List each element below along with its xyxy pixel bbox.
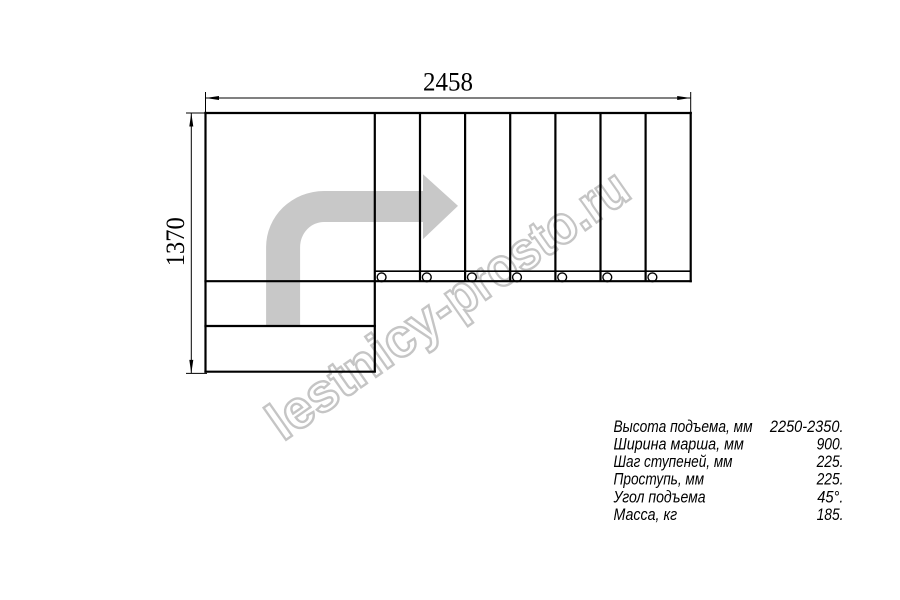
svg-text:225.: 225. (816, 453, 844, 471)
svg-text:225.: 225. (816, 471, 844, 489)
svg-text:1370: 1370 (161, 217, 190, 266)
svg-text:Высота подъема, мм: Высота подъема, мм (614, 418, 753, 436)
svg-text:Масса, кг: Масса, кг (614, 506, 678, 524)
svg-text:Проступь, мм: Проступь, мм (614, 471, 705, 489)
svg-text:Шаг ступеней, мм: Шаг ступеней, мм (614, 453, 733, 471)
svg-text:-prosto.ru: -prosto.ru (418, 157, 641, 338)
svg-text:45°.: 45°. (817, 488, 843, 506)
svg-text:2250-2350.: 2250-2350. (769, 418, 843, 436)
svg-text:Угол подъема: Угол подъема (613, 488, 706, 506)
svg-text:Ширина марша, мм: Ширина марша, мм (614, 436, 744, 454)
svg-text:900.: 900. (817, 436, 844, 454)
svg-text:185.: 185. (817, 506, 844, 524)
svg-text:2458: 2458 (423, 68, 473, 97)
